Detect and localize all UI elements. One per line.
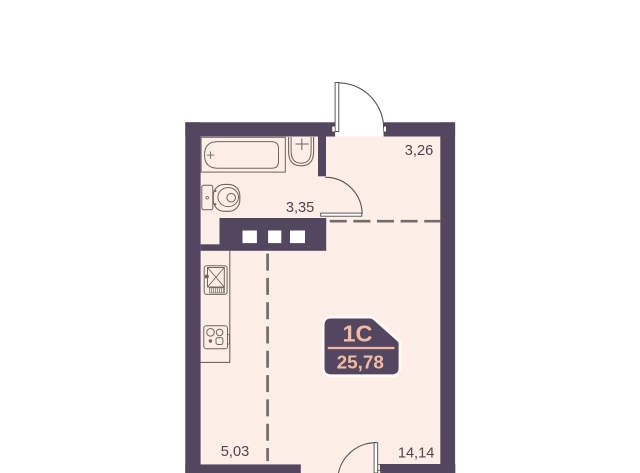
svg-text:14,14: 14,14 bbox=[398, 446, 435, 462]
svg-text:1C: 1C bbox=[342, 321, 372, 347]
svg-text:3,26: 3,26 bbox=[405, 143, 433, 159]
svg-text:25,78: 25,78 bbox=[337, 353, 384, 374]
svg-text:5,03: 5,03 bbox=[221, 444, 249, 460]
svg-text:3,35: 3,35 bbox=[286, 200, 314, 216]
